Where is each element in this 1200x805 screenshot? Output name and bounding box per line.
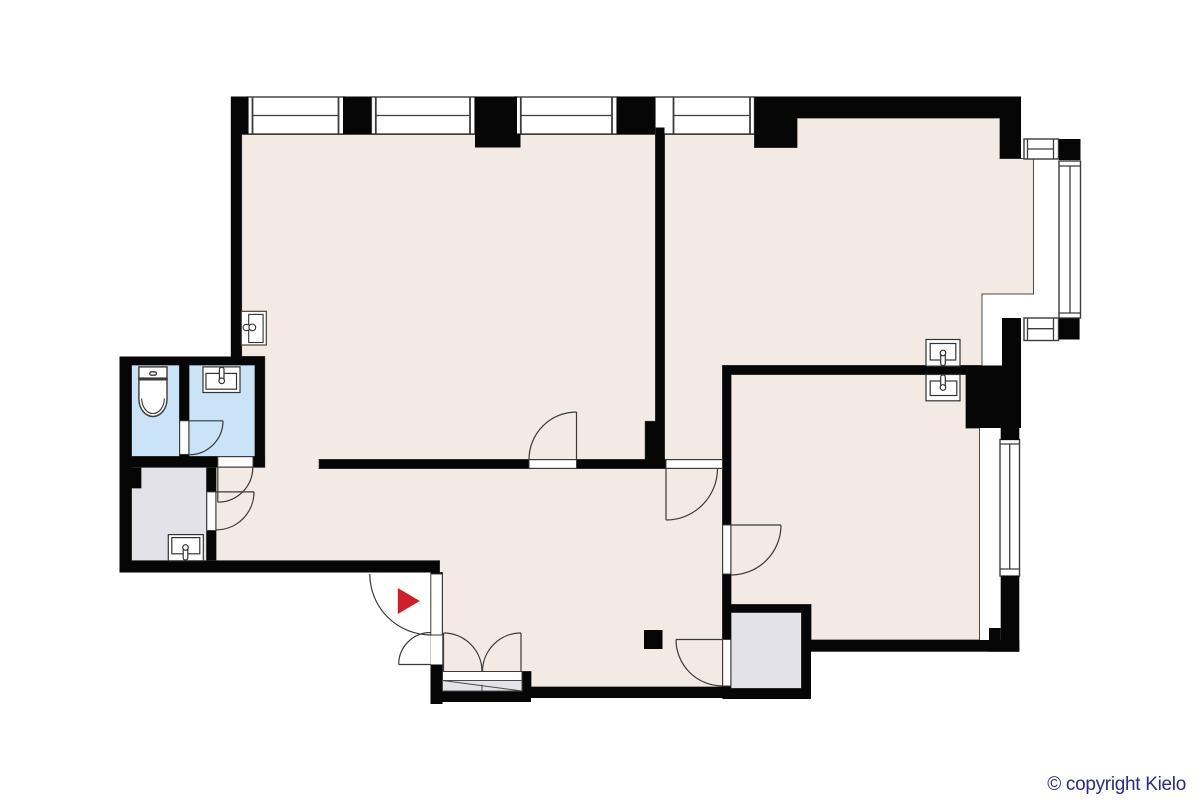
svg-text:© copyright Kielo: © copyright Kielo (1047, 774, 1186, 795)
